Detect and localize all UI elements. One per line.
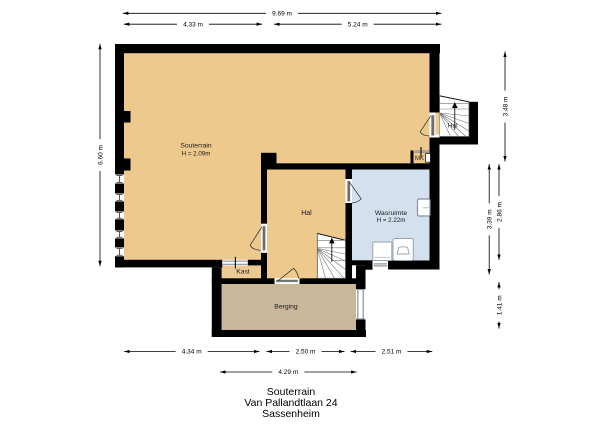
svg-text:Kast: Kast bbox=[236, 269, 250, 276]
svg-text:9.69 m: 9.69 m bbox=[272, 10, 292, 17]
svg-text:Wasruimte: Wasruimte bbox=[375, 210, 407, 217]
svg-text:2.50 m: 2.50 m bbox=[296, 349, 316, 356]
svg-text:2.51 m: 2.51 m bbox=[382, 349, 402, 356]
svg-text:H = 2.09m: H = 2.09m bbox=[182, 151, 211, 158]
svg-text:6.60 m: 6.60 m bbox=[97, 145, 104, 165]
svg-text:2.86 m: 2.86 m bbox=[496, 202, 503, 222]
svg-text:1.41 m: 1.41 m bbox=[496, 295, 503, 315]
svg-text:Berging: Berging bbox=[274, 304, 298, 311]
svg-text:MK: MK bbox=[415, 156, 424, 162]
svg-text:4.33 m: 4.33 m bbox=[183, 22, 203, 29]
svg-text:Sassenheim: Sassenheim bbox=[262, 408, 320, 420]
svg-text:4.34 m: 4.34 m bbox=[182, 349, 202, 356]
svg-text:5.24 m: 5.24 m bbox=[348, 22, 368, 29]
svg-text:Hal: Hal bbox=[301, 210, 312, 217]
svg-text:3.39 m: 3.39 m bbox=[487, 209, 494, 229]
svg-text:3.48 m: 3.48 m bbox=[502, 97, 509, 117]
svg-text:Hal: Hal bbox=[448, 122, 458, 129]
svg-text:4.29 m: 4.29 m bbox=[278, 369, 298, 376]
svg-text:Souterrain: Souterrain bbox=[180, 143, 212, 150]
svg-text:H = 2.22m: H = 2.22m bbox=[377, 217, 406, 224]
